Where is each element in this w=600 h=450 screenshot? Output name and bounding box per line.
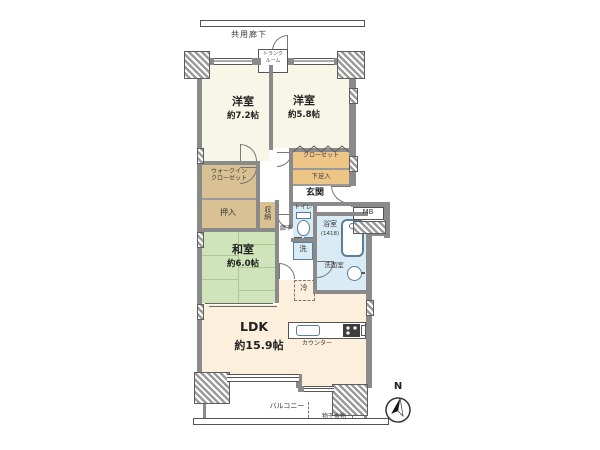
trunk-room-label-2: ルーム xyxy=(266,59,281,65)
pillar-hatch xyxy=(349,88,358,104)
hallway-label: 廊下 xyxy=(280,226,292,233)
pillar-hatch xyxy=(349,156,358,172)
laundry-fitting-label: 物干金物 xyxy=(322,414,346,421)
door-arc xyxy=(279,263,295,279)
door-leaf xyxy=(331,186,351,187)
counter-label: カウンター xyxy=(302,341,332,348)
wall-segment xyxy=(291,238,315,242)
floor-plan: 共用廊下 トランク ルーム 洋室 約7.2帖 洋室 約5.8帖 クローゼット 下… xyxy=(0,0,600,450)
shoe-box-label: 下足入 xyxy=(311,173,331,180)
toilet-bowl xyxy=(297,220,310,236)
kitchen-sink xyxy=(296,325,320,336)
wall-segment xyxy=(256,165,260,232)
room-floor-ldk xyxy=(279,294,366,305)
wall-segment xyxy=(313,212,368,216)
partition-line xyxy=(202,198,256,200)
entrance-label: 玄関 xyxy=(306,189,324,199)
pillar-hatch xyxy=(197,232,204,248)
pillar-hatch xyxy=(337,51,365,79)
oshiire-label: 押入 xyxy=(220,209,236,218)
meter-box-label: MB xyxy=(363,209,374,217)
sliding-door-line xyxy=(209,306,277,307)
balcony-label: バルコニー xyxy=(270,403,305,411)
pillar-hatch xyxy=(184,51,210,79)
common-corridor-label: 共用廊下 xyxy=(231,31,267,40)
tatami-line xyxy=(202,279,238,280)
balcony-railing xyxy=(193,418,389,425)
door-leaf xyxy=(240,144,241,161)
partition-line xyxy=(293,168,349,170)
toilet-tank xyxy=(296,212,311,219)
storage-label: 収納 xyxy=(263,206,271,220)
window xyxy=(227,374,299,382)
bedroom1-size: 約7.2帖 xyxy=(227,112,259,121)
sliding-door-line xyxy=(205,303,273,304)
pillar-hatch xyxy=(353,221,386,234)
window xyxy=(304,386,334,392)
ldk-size: 約15.9帖 xyxy=(234,340,283,352)
wall-segment xyxy=(202,161,260,165)
wall-segment xyxy=(269,65,273,150)
pillar-hatch xyxy=(197,148,204,164)
closet-folding-door-icon xyxy=(293,146,349,152)
wall-segment xyxy=(313,204,317,294)
washroom-label: 洗面室 xyxy=(324,262,344,269)
bedroom2-label: 洋室 xyxy=(293,95,315,107)
sink-tap xyxy=(361,272,365,274)
bedroom1-label: 洋室 xyxy=(232,96,254,108)
stove xyxy=(343,324,360,337)
window xyxy=(294,58,334,65)
window xyxy=(214,58,252,65)
tatami-line xyxy=(239,290,275,291)
wic-label-2: クローゼット xyxy=(211,176,247,183)
wall-segment xyxy=(275,200,279,303)
washroom-sink xyxy=(347,266,362,281)
wall-segment xyxy=(289,152,293,228)
japanese-room-label: 和室 xyxy=(232,244,254,256)
partition-line xyxy=(293,184,349,186)
pillar-hatch xyxy=(366,300,374,316)
pillar-hatch xyxy=(197,304,204,320)
washer-label: 洗 xyxy=(299,245,307,253)
door-leaf xyxy=(279,263,280,279)
north-label: N xyxy=(394,381,402,392)
floorplan-image: 共用廊下 トランク ルーム 洋室 約7.2帖 洋室 約5.8帖 クローゼット 下… xyxy=(0,0,600,450)
bath-size-label: (1418) xyxy=(321,231,339,237)
wall-segment xyxy=(202,228,279,232)
trunk-room-label-1: トランク xyxy=(263,52,283,58)
closet-label: クローゼット xyxy=(303,153,339,160)
fridge-label: 冷 xyxy=(300,284,308,292)
japanese-room-size: 約6.0帖 xyxy=(227,260,259,269)
common-corridor-strip xyxy=(200,20,365,27)
wall-segment xyxy=(197,58,202,382)
toilet-label: トイレ xyxy=(294,205,312,212)
laundry-fitting-mark-left xyxy=(308,402,309,418)
pillar-hatch xyxy=(194,372,230,404)
room-floor-ldk xyxy=(202,305,366,374)
pillar-hatch xyxy=(332,384,368,416)
ldk-label: LDK xyxy=(240,320,268,334)
bath-label: 浴室 xyxy=(323,221,337,229)
wall-segment xyxy=(313,290,370,294)
north-arrow: N xyxy=(382,378,416,430)
bedroom2-size: 約5.8帖 xyxy=(288,111,320,120)
